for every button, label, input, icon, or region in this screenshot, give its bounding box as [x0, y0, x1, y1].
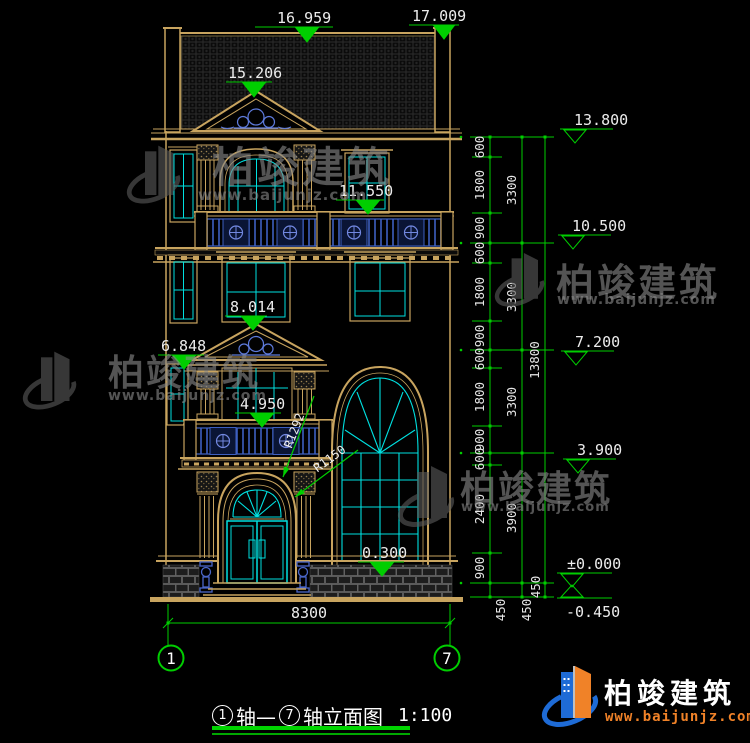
dim-value: 450: [493, 599, 508, 622]
dim-value: 3900: [504, 503, 519, 533]
axis-bubbles: 1 7: [159, 646, 460, 671]
building-elevation: [150, 28, 463, 602]
caption-axis-start: 1: [212, 705, 233, 726]
arched-window-large: [327, 367, 433, 569]
elevation-label: -0.450: [566, 603, 620, 621]
watermark-logo-icon: [21, 352, 79, 414]
footer-brand-logo-icon: [540, 666, 601, 731]
axis-number-right: 7: [442, 649, 452, 668]
axis-number-left: 1: [166, 649, 176, 668]
elevation-label: 15.206: [228, 64, 282, 82]
dim-value: 600: [472, 348, 487, 371]
elevation-label: 13.800: [574, 111, 628, 129]
elevation-drawing-svg: 16.959 17.009 15.206 11.550 8.014 6.848 …: [0, 0, 750, 743]
caption-axis-end: 7: [279, 705, 300, 726]
elevation-label: 0.300: [362, 544, 407, 562]
elevation-label: 4.950: [240, 395, 285, 413]
dim-value: 2400: [472, 494, 487, 524]
dim-value: 600: [472, 136, 487, 159]
elevation-label: 7.200: [575, 333, 620, 351]
elevation-label: ±0.000: [567, 555, 621, 573]
elevation-label: 17.009: [412, 7, 466, 25]
cad-elevation-screenshot: 16.959 17.009 15.206 11.550 8.014 6.848 …: [0, 0, 750, 743]
chain-mid-labels: 3300 3300 3300 3900 450: [504, 175, 534, 621]
dim-value: 1800: [472, 277, 487, 307]
footer-brand-url: www.baijunjz.com: [605, 709, 750, 725]
dim-value: 13800: [527, 341, 542, 379]
elevation-label: 10.500: [572, 217, 626, 235]
ground-line: [150, 597, 463, 602]
caption-underline-thin: [212, 733, 410, 735]
dim-value: 3300: [504, 175, 519, 205]
dim-value: 450: [519, 599, 534, 622]
dim-value: 1800: [472, 382, 487, 412]
bottom-dimension: 8300: [163, 604, 455, 645]
dim-value: 900: [472, 217, 487, 240]
elevation-label: 6.848: [161, 337, 206, 355]
caption-scale: 1:100: [398, 705, 452, 726]
elevation-label: 11.550: [339, 182, 393, 200]
elevation-label: 8.014: [230, 298, 275, 316]
elevation-markers-right: [557, 129, 616, 598]
chain-outer-labels: 13800 450: [527, 341, 543, 598]
elevation-label: 16.959: [277, 9, 331, 27]
footer-brand-name: 柏竣建筑: [604, 672, 736, 712]
dim-value: 900: [472, 557, 487, 580]
caption-underline-thick: [212, 726, 410, 730]
steps: [203, 583, 311, 595]
dim-value: 600: [472, 448, 487, 471]
dim-value: 3300: [504, 387, 519, 417]
elevation-label: 3.900: [577, 441, 622, 459]
dim-value: 450: [528, 576, 543, 599]
dim-value: 1800: [472, 170, 487, 200]
double-door: [227, 521, 287, 583]
watermark-logo-icon: [493, 253, 546, 310]
overall-width-label: 8300: [291, 604, 327, 622]
dim-value: 900: [472, 325, 487, 348]
dim-value: 600: [472, 242, 487, 265]
